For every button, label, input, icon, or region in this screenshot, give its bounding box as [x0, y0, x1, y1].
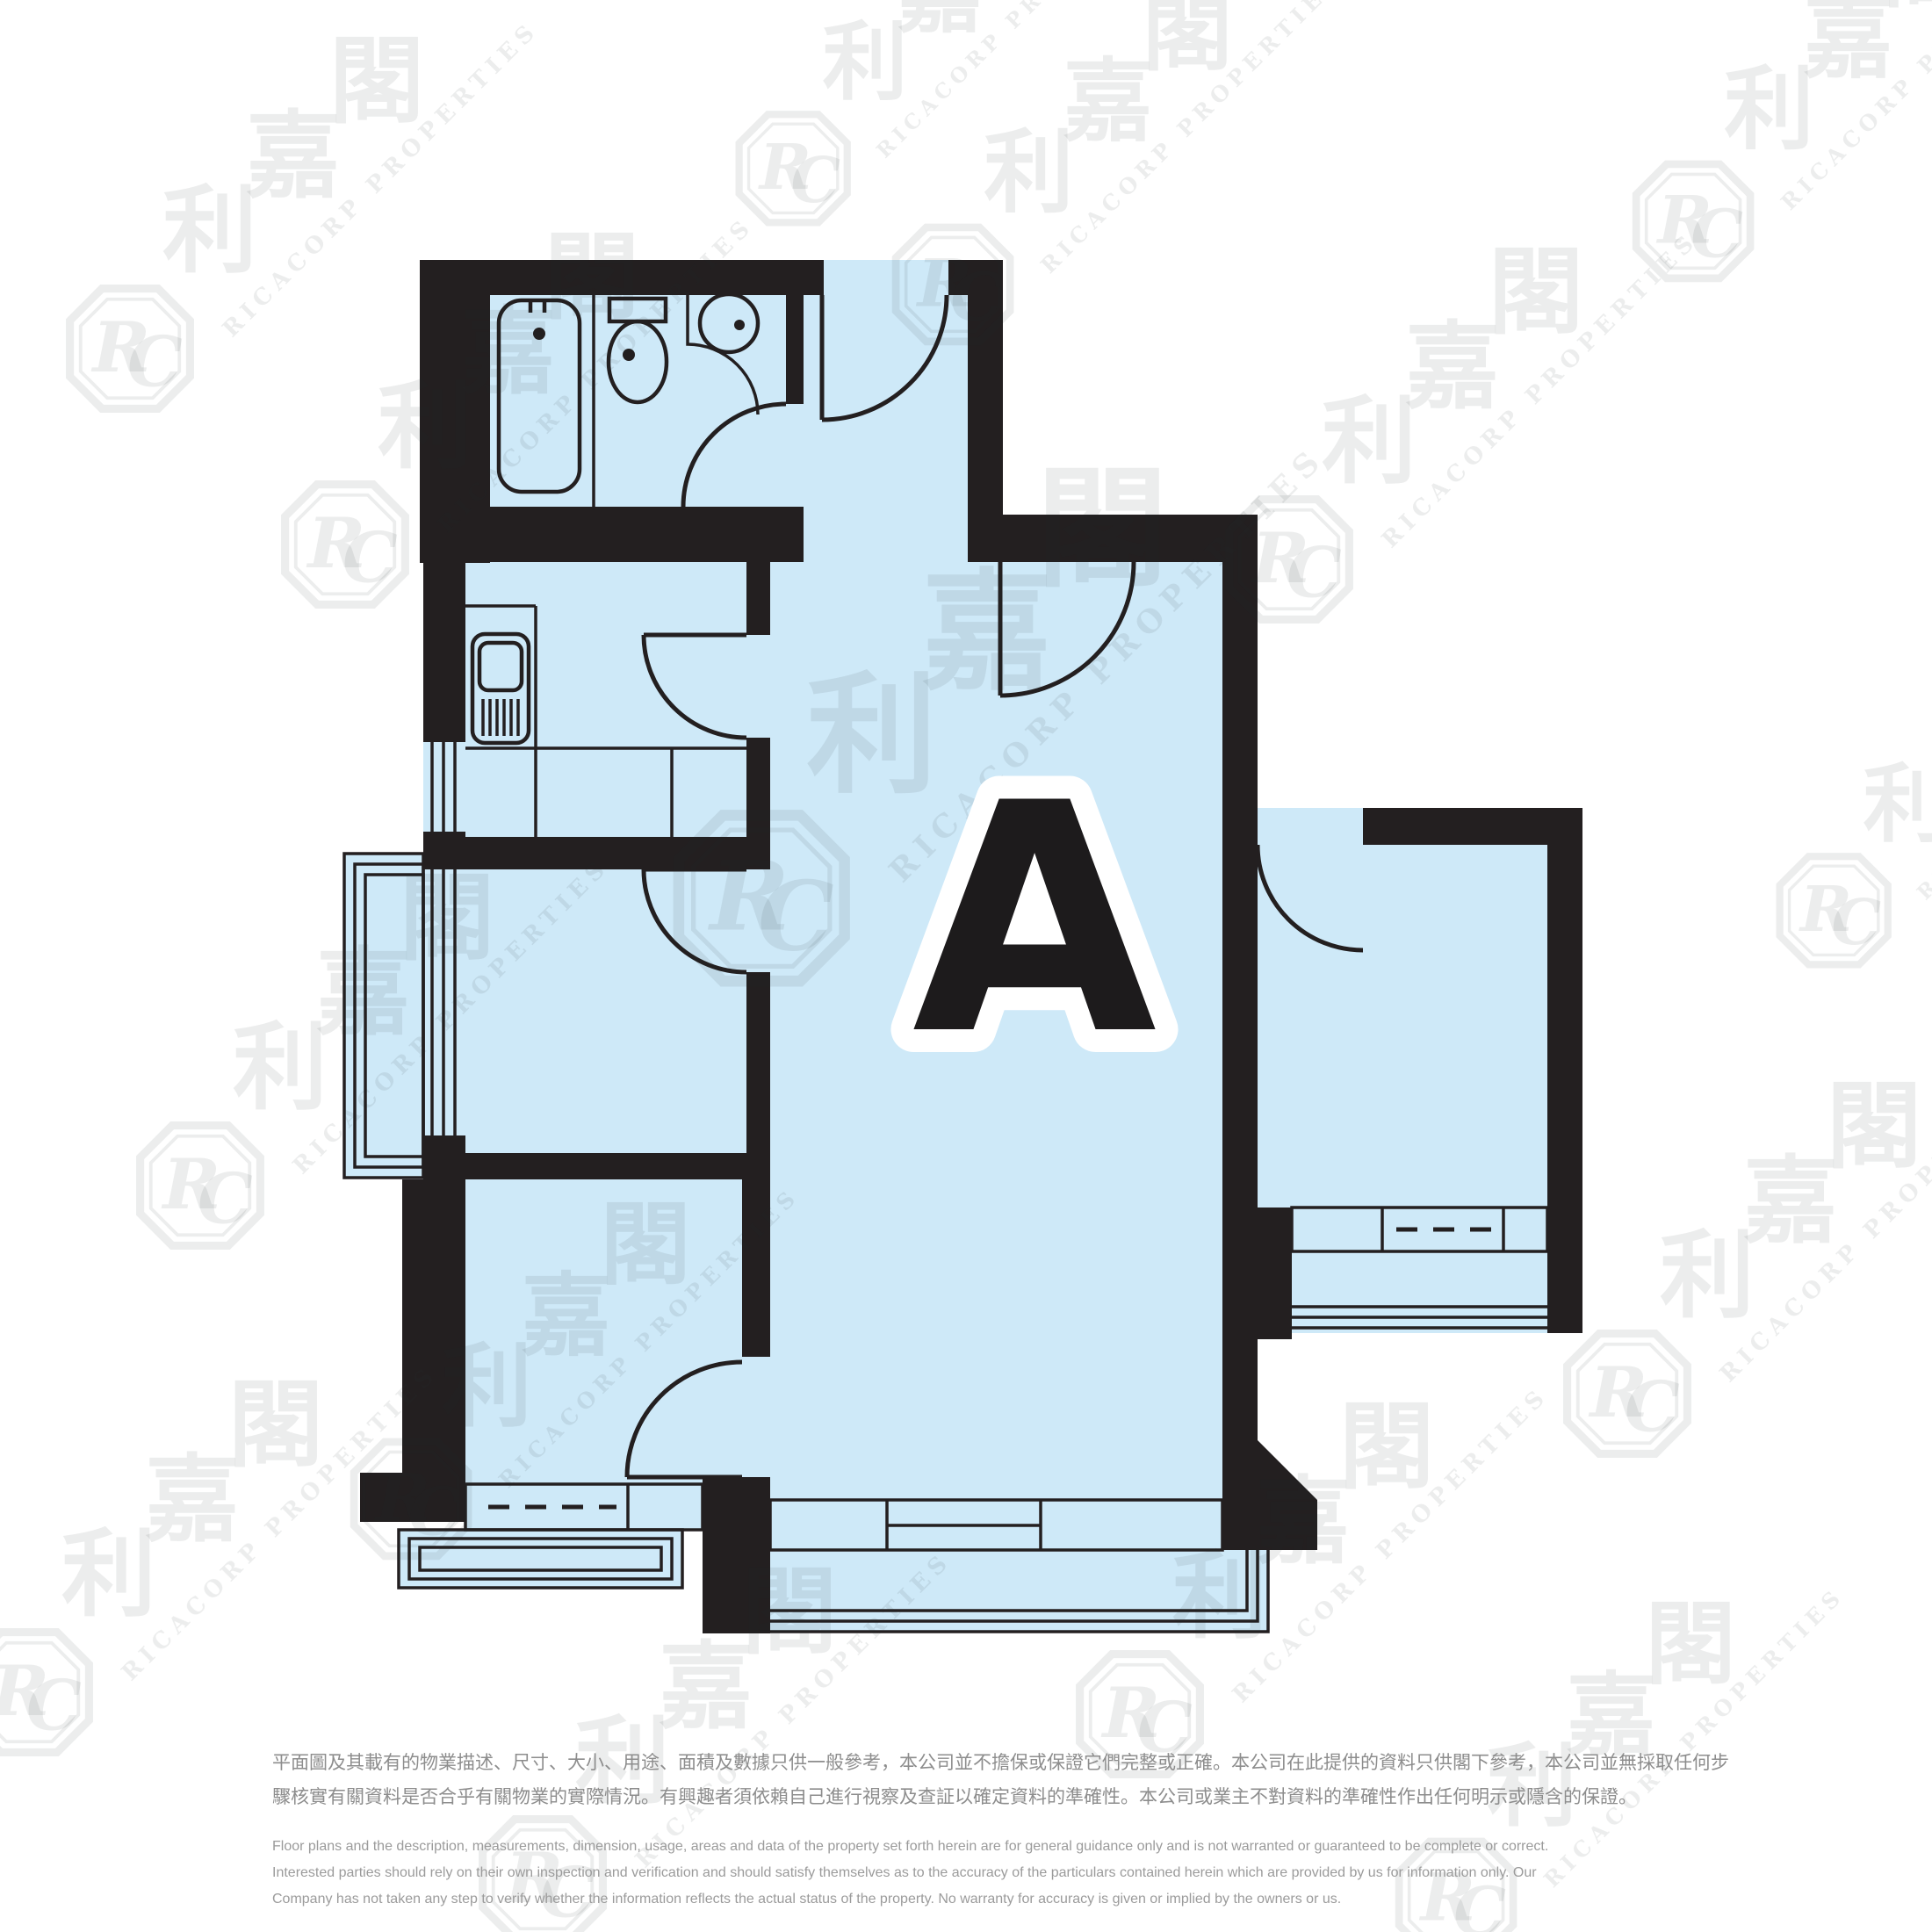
disclaimer-en-line: Floor plans and the description, measure… — [272, 1834, 1669, 1860]
washbasin-drain-icon — [734, 320, 745, 330]
chamfered-wall-pier — [1222, 1440, 1317, 1550]
bedroom2-door-gap — [742, 1357, 770, 1477]
bedroom3-balcony-floor — [1292, 1251, 1582, 1333]
disclaimer-en-block: Floor plans and the description, measure… — [272, 1834, 1669, 1913]
bathroom-door-gap — [786, 404, 804, 507]
bedroom1-door-gap — [746, 869, 770, 972]
bathtub-drain-icon — [533, 328, 545, 340]
living-room-floor — [770, 562, 1222, 1550]
disclaimer-en-line: Interested parties should rely on their … — [272, 1860, 1669, 1886]
bedroom3-floor — [1258, 845, 1547, 1207]
entrance-gap — [824, 260, 948, 295]
balcony-floor — [703, 1550, 1268, 1632]
entry-hall-floor — [804, 295, 968, 562]
bedroom2-floor — [465, 1179, 742, 1484]
room-floors — [344, 260, 1582, 1632]
kitchen-floor — [465, 562, 746, 837]
disclaimer-en-line: Company has not taken any step to verify… — [272, 1886, 1669, 1913]
bedroom3-door-gap — [1258, 808, 1363, 845]
kitchen-door-gap — [746, 635, 770, 738]
toilet-flush-icon — [623, 349, 635, 361]
disclaimer-zh-line: 平面圖及其載有的物業描述、尺寸、大小、用途、面積及數據只供一般參考，本公司並不擔… — [272, 1746, 1669, 1780]
bedroom1-floor — [465, 869, 746, 1153]
bedroom3-window-band-floor — [1292, 1207, 1547, 1251]
floor-plan-page: RC利嘉閣RICACORP PROPERTIESRC利嘉閣RICACORP PR… — [0, 0, 1932, 1932]
floor-plan-drawing — [0, 0, 1932, 1932]
disclaimer-zh-line: 驟核實有關資料是否合乎有關物業的實際情況。有興趣者須依賴自己進行視察及查証以確定… — [272, 1780, 1669, 1814]
disclaimer-block: 平面圖及其載有的物業描述、尺寸、大小、用途、面積及數據只供一般參考，本公司並不擔… — [272, 1746, 1669, 1913]
